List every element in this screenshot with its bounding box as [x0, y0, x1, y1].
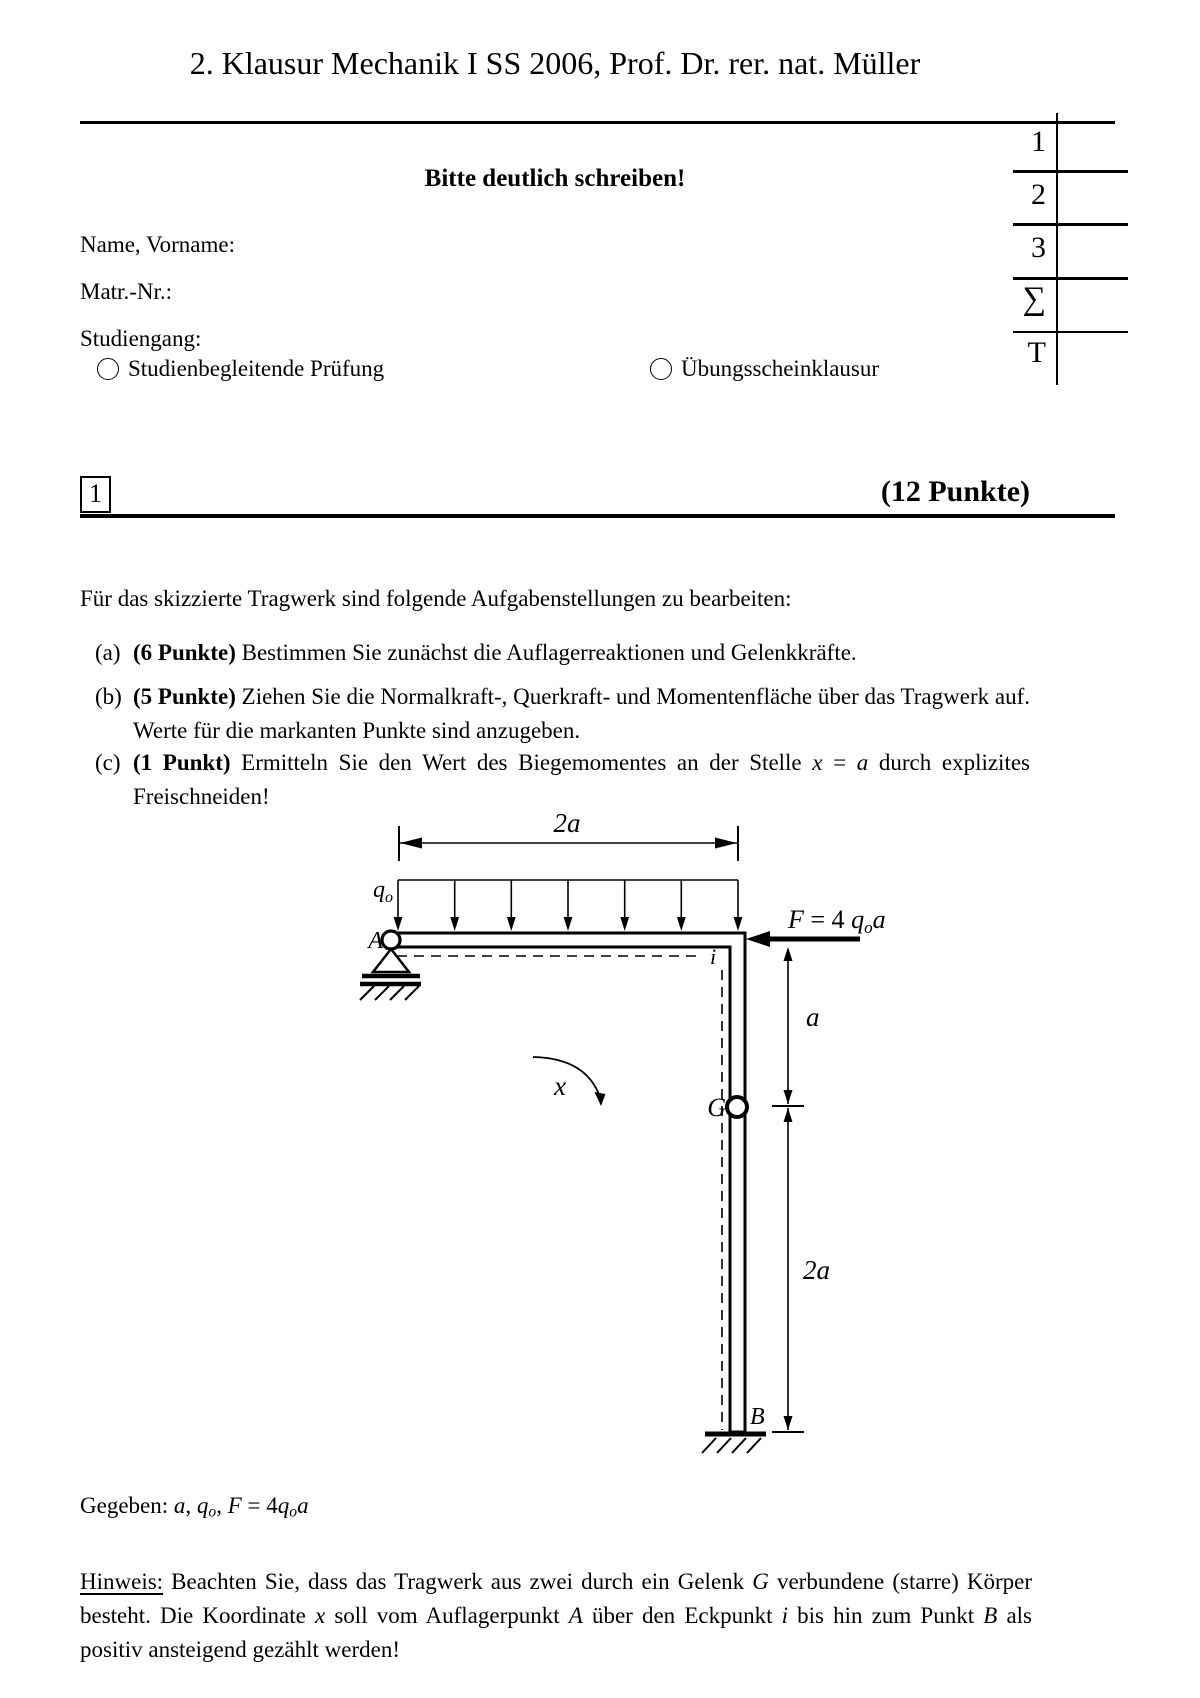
force-F: F = 4 qoa [746, 905, 886, 947]
load-label: qo [373, 877, 393, 906]
distributed-load: qo [373, 877, 742, 931]
given-line: Gegeben: a, qo, F = 4qoa [80, 1489, 1030, 1529]
hint-label: Hinweis: [80, 1569, 163, 1594]
frame [391, 933, 745, 1432]
exam-page: 2. Klausur Mechanik I SS 2006, Prof. Dr.… [0, 0, 1200, 1698]
coordinate-x: x [533, 1057, 606, 1106]
dimension-2a-bottom: 2a [772, 1108, 830, 1432]
dashed-axis: i [397, 944, 722, 1430]
dimension-a: a [772, 947, 820, 1106]
dimension-2a-top: 2a [399, 808, 738, 861]
coordinate-label: x [553, 1071, 566, 1101]
force-label: F = 4 qoa [787, 905, 886, 937]
dimension-label: 2a [803, 1255, 830, 1285]
support-b-label: B [750, 1404, 765, 1430]
hinge-G: G [707, 1093, 747, 1122]
hint-paragraph: Hinweis: Beachten Sie, dass das Tragwerk… [80, 1565, 1032, 1667]
dimension-label: a [806, 1002, 820, 1032]
statics-diagram: 2a qo i [0, 0, 1200, 1698]
support-a-label: A [366, 928, 383, 954]
hinge-label: G [707, 1093, 726, 1122]
dimension-label: 2a [554, 808, 581, 838]
